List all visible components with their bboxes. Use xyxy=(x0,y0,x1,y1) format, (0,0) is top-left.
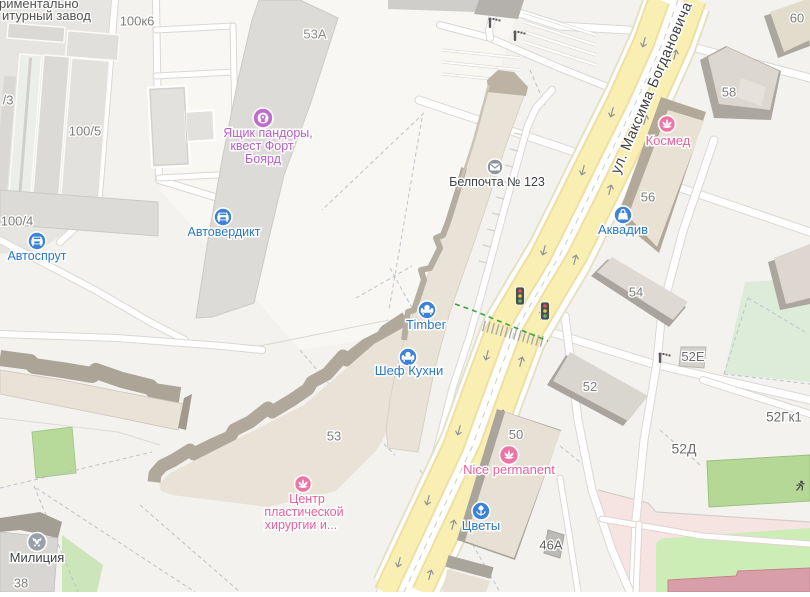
svg-text:Аквадив: Аквадив xyxy=(598,222,648,237)
svg-text:52Е: 52Е xyxy=(681,349,704,364)
svg-text:56: 56 xyxy=(641,190,655,205)
svg-text:Автовердикт: Автовердикт xyxy=(188,225,261,239)
svg-text:Боярд: Боярд xyxy=(245,152,282,166)
svg-text:Timber: Timber xyxy=(406,317,447,332)
svg-text:Белпочта № 123: Белпочта № 123 xyxy=(449,175,545,189)
svg-text:53: 53 xyxy=(327,429,341,444)
svg-text:46А: 46А xyxy=(539,538,562,553)
svg-text:53А: 53А xyxy=(303,27,326,42)
svg-text:Ящик пандоры,: Ящик пандоры, xyxy=(223,126,313,140)
svg-text:квест Форт: квест Форт xyxy=(230,139,294,153)
svg-text:100/4: 100/4 xyxy=(1,214,34,229)
svg-text:Nice permanent: Nice permanent xyxy=(463,462,555,477)
svg-text:50: 50 xyxy=(509,427,523,442)
svg-text:54: 54 xyxy=(629,285,643,300)
svg-text:52Д: 52Д xyxy=(671,441,697,457)
svg-text:итурный завод: итурный завод xyxy=(2,8,91,23)
svg-text:Центр: Центр xyxy=(289,492,325,506)
svg-text:52: 52 xyxy=(583,379,597,394)
svg-text:хирургии и...: хирургии и... xyxy=(265,518,338,532)
svg-text:58: 58 xyxy=(722,85,736,100)
svg-text:Цветы: Цветы xyxy=(462,518,500,533)
svg-text:100к6: 100к6 xyxy=(120,14,155,29)
svg-text:Космед: Космед xyxy=(646,133,691,148)
svg-text:Милиция: Милиция xyxy=(10,550,65,565)
svg-text:Автоспрут: Автоспрут xyxy=(7,249,66,263)
svg-text:100/5: 100/5 xyxy=(69,124,102,139)
svg-text:пластической: пластической xyxy=(264,505,343,519)
svg-text:52Гк1: 52Гк1 xyxy=(766,410,802,425)
svg-text:Шеф Кухни: Шеф Кухни xyxy=(375,363,443,378)
svg-text:/3: /3 xyxy=(3,93,14,108)
svg-text:60: 60 xyxy=(790,11,804,26)
svg-text:38: 38 xyxy=(14,576,28,591)
